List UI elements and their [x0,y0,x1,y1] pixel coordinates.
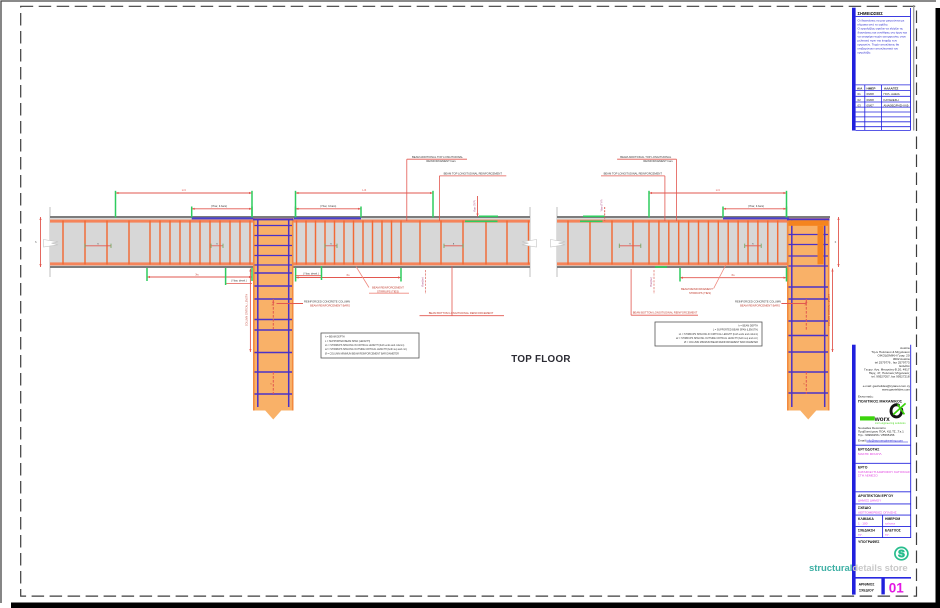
svg-text:ΠΟΛ. ΑΔΕΙΑ: ΠΟΛ. ΑΔΕΙΑ [884,92,900,96]
svg-text:01: 01 [858,92,862,96]
svg-text:BEAM ADDITIONAL TOP LONGITUDIN: BEAM ADDITIONAL TOP LONGITUDINAL [620,155,671,159]
svg-text:L/4: L/4 [182,188,186,192]
svg-text:Α/Α: Α/Α [857,86,863,90]
svg-text:ΠΟΛΙΤΙΚΟΣ ΜΗΧΑΝΙΚΟΣ: ΠΟΛΙΤΙΚΟΣ ΜΗΧΑΝΙΚΟΣ [858,399,903,403]
svg-text:(Ybar, It.bars): (Ybar, It.bars) [211,204,227,208]
svg-text:02: 02 [858,98,862,102]
svg-text:ΣΧΕΔΙΟΥ: ΣΧΕΔΙΟΥ [859,588,874,592]
svg-text:09/08: 09/08 [867,92,875,96]
svg-text:BEAM ADDITIONAL TOP LONGITUDIN: BEAM ADDITIONAL TOP LONGITUDINAL [412,155,463,159]
svg-text:L = SUPPORTED BEAM SPAN (LENGT: L = SUPPORTED BEAM SPAN (LENGTH) [713,329,758,332]
svg-text:L/4: L/4 [362,188,366,192]
svg-text:www.gavrielides.com: www.gavrielides.com [882,387,911,391]
svg-text:ΚΑΤΑΘΕΣΗ: ΚΑΤΑΘΕΣΗ [884,98,899,102]
svg-text:01: 01 [889,580,905,595]
svg-text:Ybar (TYP): Ybar (TYP) [600,199,603,211]
svg-text:BEAM REINFORCEMENT BARS: BEAM REINFORCEMENT BARS [310,304,350,308]
svg-text:BEAM BOTTOM LONGITUDINAL REINF: BEAM BOTTOM LONGITUDINAL REINFORCEMENT [429,311,494,315]
svg-text:Ø = COLUMN MINIMUM BEAM REINFO: Ø = COLUMN MINIMUM BEAM REINFORCEMENT BA… [325,352,399,355]
svg-text:ΕΛΕΓΧΟΣ: ΕΛΕΓΧΟΣ [885,528,901,532]
svg-text:ΚΛΙΜΑΚΑ: ΚΛΙΜΑΚΑ [858,517,874,521]
svg-text:h = BEAM DEPTH: h = BEAM DEPTH [325,336,345,339]
svg-text:TOP FLOOR: TOP FLOOR [511,354,571,365]
svg-text:Email:: Email: [858,438,867,442]
svg-text:COLUMN CRITICAL LENGTH: COLUMN CRITICAL LENGTH [245,294,248,326]
svg-text:ΕΡΓΟΔΟΤΗΣ: ΕΡΓΟΔΟΤΗΣ [858,448,879,452]
svg-text:REINFORCED CONCRETE COLUMN: REINFORCED CONCRETE COLUMN [304,300,350,304]
svg-text:εργολάβο.: εργολάβο. [858,51,872,55]
svg-text:structuraldetails store: structuraldetails store [809,563,908,574]
svg-text:ΣΤΗ ΛΕΜΕΣΟ: ΣΤΗ ΛΕΜΕΣΟ [858,474,878,478]
svg-text:BEAM REINFORCEMENT: BEAM REINFORCEMENT [372,285,404,289]
svg-text:s1 = STIRRUPS SPACING IN CRITI: s1 = STIRRUPS SPACING IN CRITICAL LENGTH… [679,333,758,336]
svg-text:Ybar (TYP): Ybar (TYP) [474,200,477,212]
svg-text:STIRRUPS (TIES): STIRRUPS (TIES) [377,289,399,293]
svg-text:03: 03 [858,104,862,108]
svg-text:h = BEAM DEPTH: h = BEAM DEPTH [738,324,758,327]
svg-text:ΛΕΠΤΟΜΕΡΕΙΕΣ ΟΠΛΙΣΗΣ: ΛΕΠΤΟΜΕΡΕΙΕΣ ΟΠΛΙΣΗΣ [858,511,897,515]
svg-text:ΕΡΓΟ: ΕΡΓΟ [858,466,868,470]
svg-text:ΔΗΜΟΣ ΔΗΜΟΥ: ΔΗΜΟΣ ΔΗΜΟΥ [858,499,881,503]
svg-text:s2 = STIRRUPS SPACING OUTSIDE: s2 = STIRRUPS SPACING OUTSIDE CRITICAL L… [325,348,407,351]
svg-text:COLUMN CRITICAL LENGTH: COLUMN CRITICAL LENGTH [828,294,831,326]
svg-text:xx/xxxx: xx/xxxx [885,522,896,526]
svg-text:BEAM TOP LONGITUDINAL REINFORC: BEAM TOP LONGITUDINAL REINFORCEMENT [604,171,663,175]
svg-text:S: S [898,549,905,560]
svg-text:09/07: 09/07 [867,104,875,108]
svg-text:ΜΑΚΗΣ ΜΙΧΑΗΛ: ΜΑΚΗΣ ΜΙΧΑΗΛ [858,452,883,456]
svg-text:ΣΧΕΔΙΑΣΗ: ΣΧΕΔΙΑΣΗ [858,528,875,532]
svg-text:ΑΝΑΘΕΩΡΗΣΗ ΚΦ.: ΑΝΑΘΕΩΡΗΣΗ ΚΦ. [884,104,910,108]
svg-text:s1 = STIRRUPS SPACING IN CRITI: s1 = STIRRUPS SPACING IN CRITICAL LENGTH… [325,344,404,347]
svg-text:(Ybar, devel.): (Ybar, devel.) [231,279,247,283]
svg-text:ΑΡΙΘΜΟΣ: ΑΡΙΘΜΟΣ [859,582,875,586]
svg-text:Ø = COLUMN MINIMUM BEAM REINFO: Ø = COLUMN MINIMUM BEAM REINFORCEMENT BA… [684,341,758,344]
svg-text:BEAM REINFORCEMENT: BEAM REINFORCEMENT [681,287,713,291]
svg-text:(Ybar, devel.): (Ybar, devel.) [303,271,319,275]
svg-text:(Ybar, It.bars): (Ybar, It.bars) [748,204,764,208]
svg-text:BEAM REINFORCEMENT BARS: BEAM REINFORCEMENT BARS [740,304,780,308]
svg-text:L/4: L/4 [716,188,720,192]
svg-text:Τηλ.: 99999156 / 25565156: Τηλ.: 99999156 / 25565156 [858,433,895,437]
svg-text:tel. 99527057, fax 99527218: tel. 99527057, fax 99527218 [871,375,909,379]
svg-text:ΣΧΕΔΙΟ: ΣΧΕΔΙΟ [858,506,871,510]
svg-text:ΣΗΜΕΙΩΣΕΙΣ: ΣΗΜΕΙΩΣΕΙΣ [858,11,884,16]
svg-text:ΗΜΕΡΟΜ: ΗΜΕΡΟΜ [885,517,900,521]
svg-text:s2 = STIRRUPS SPACING OUTSIDE: s2 = STIRRUPS SPACING OUTSIDE CRITICAL L… [676,337,758,340]
svg-text:ΥΠΟΓΡΑΦΕΣ: ΥΠΟΓΡΑΦΕΣ [858,540,880,544]
svg-text:(Ybar, It.bars): (Ybar, It.bars) [320,204,336,208]
svg-text:Ybar(dev): Ybar(dev) [650,277,653,287]
svg-text:L = SUPPORTED BEAM SPAN (LENGT: L = SUPPORTED BEAM SPAN (LENGTH) [325,340,370,343]
svg-text:BEAM BOTTOM LONGITUDINAL REINF: BEAM BOTTOM LONGITUDINAL REINFORCEMENT [633,311,698,315]
svg-text:STIRRUPS (TIES): STIRRUPS (TIES) [689,291,711,295]
svg-text:BEAM TOP LONGITUDINAL REINFORC: BEAM TOP LONGITUDINAL REINFORCEMENT [444,171,503,175]
svg-text:ΗΜΕΡ: ΗΜΕΡ [867,86,876,90]
svg-text:REINFORCED CONCRETE COLUMN: REINFORCED CONCRETE COLUMN [735,300,781,304]
svg-text:09/08: 09/08 [867,98,875,102]
svg-text:Τ.Γ.: Τ.Γ. [885,533,890,537]
svg-text:Εκπονητής:: Εκπονητής: [858,394,874,398]
svg-text:info@worxengineering.com: info@worxengineering.com [867,438,904,442]
svg-text:civil engineering solutions: civil engineering solutions [875,422,906,425]
svg-text:ΑΛΛΑΓΕΣ: ΑΛΛΑΓΕΣ [884,86,899,90]
svg-text:1 : 100: 1 : 100 [858,522,868,526]
svg-text:ΑΡΧΙΤΕΚΤΩΝ ΕΡΓΟΥ: ΑΡΧΙΤΕΚΤΩΝ ΕΡΓΟΥ [858,494,894,498]
svg-text:Ybar(dev): Ybar(dev) [422,277,425,287]
svg-text:Τ.Γ.: Τ.Γ. [858,533,863,537]
